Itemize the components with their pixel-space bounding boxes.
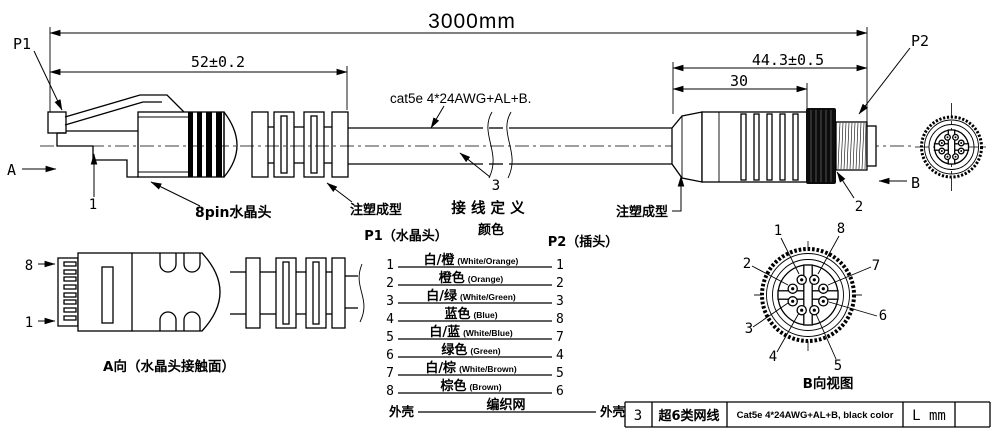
p2-callout: P2 <box>859 32 929 114</box>
row7-p1: 8 <box>386 384 394 399</box>
wiring-row: 1 白/橙(White/Orange) 1 <box>386 252 564 273</box>
overmold-left-text: 注塑成型 <box>350 202 402 218</box>
cable-spec-text: cat5e 4*24AWG+AL+B. <box>390 91 531 106</box>
a-view-pin1: 1 <box>25 315 33 331</box>
row4-color: 白/蓝(White/Blue) <box>429 324 512 340</box>
row7-p2: 6 <box>556 384 564 399</box>
row4-p1: 5 <box>386 330 394 345</box>
row6-color: 白/棕(White/Brown) <box>425 360 517 376</box>
b-pin-7: 7 <box>872 258 880 274</box>
wiring-row: 3 白/绿(White/Green) 3 <box>386 288 564 309</box>
wiring-row-shield: 外壳 编织网 外壳 <box>388 397 626 419</box>
overmold-right-callout: 注塑成型 <box>616 176 681 220</box>
rj45-connector-side-view <box>48 95 348 177</box>
wiring-row: 6 绿色(Green) 4 <box>386 342 564 363</box>
row2-p2: 3 <box>556 294 564 309</box>
dim-p2-length: 44.3±0.5 <box>752 51 824 69</box>
drawing-canvas: 3000mm 52±0.2 44.3±0.5 30 P1 P2 <box>0 0 1000 432</box>
b-pin-6: 6 <box>879 308 887 324</box>
b-pin-8: 8 <box>837 221 845 237</box>
view-a-arrow: A <box>7 161 56 179</box>
row3-p2: 8 <box>556 312 564 327</box>
callout-1: 1 <box>89 154 97 213</box>
callout-2-text: 2 <box>855 199 863 215</box>
overmold-left-callout: 注塑成型 <box>327 183 402 218</box>
row0-p1: 1 <box>386 258 394 273</box>
b-pin-1: 1 <box>774 223 782 239</box>
dim-p2-body: 30 <box>730 72 748 90</box>
row8-p2: 外壳 <box>599 404 626 419</box>
row4-p2: 7 <box>556 330 564 345</box>
row6-p2: 5 <box>556 366 564 381</box>
wiring-row: 2 橙色(Orange) 2 <box>386 270 564 291</box>
row3-color: 蓝色(Blue) <box>444 306 497 322</box>
row8-color: 编织网 <box>486 397 525 413</box>
row1-p2: 2 <box>556 276 564 291</box>
overmold-right-text: 注塑成型 <box>616 204 668 220</box>
row5-p1: 6 <box>386 348 394 363</box>
m12-face-small-view <box>915 103 989 191</box>
rj45-label-text: 8pin水晶头 <box>195 204 272 221</box>
m12-connector-side-view <box>672 108 876 184</box>
p1-label: P1 <box>13 35 31 53</box>
row1-color: 橙色(Orange) <box>439 270 504 286</box>
wiring-row: 4 蓝色(Blue) 8 <box>386 306 564 327</box>
b-label: B <box>911 174 920 192</box>
a-label: A <box>7 161 16 179</box>
wiring-col-p2: P2（插头） <box>548 234 619 250</box>
row5-color: 绿色(Green) <box>441 342 500 358</box>
callout-3: 3 <box>460 153 500 194</box>
callout-2: 2 <box>837 172 863 215</box>
dim-overall-length: 3000mm <box>428 10 516 33</box>
rj45-label-callout: 8pin水晶头 <box>151 182 272 221</box>
rj45-contact-face-view: 8 1 <box>25 253 364 375</box>
row2-p1: 3 <box>386 294 394 309</box>
row5-p2: 4 <box>556 348 564 363</box>
row1-p1: 2 <box>386 276 394 291</box>
wiring-definition: 接 线 定 义 P1（水晶头） 颜色 P2（插头） 1 白/橙(White/Or… <box>364 199 625 419</box>
row6-p1: 7 <box>386 366 394 381</box>
m12-face-b-view: 1 8 2 7 3 6 4 5 B向视图 <box>743 221 887 392</box>
callout-3-text: 3 <box>492 178 500 194</box>
cable-spec-callout: cat5e 4*24AWG+AL+B. <box>390 91 531 128</box>
row3-p1: 4 <box>386 312 394 327</box>
callout-1-text: 1 <box>89 197 97 213</box>
bom-item-spec: Cat5e 4*24AWG+AL+B, black color <box>737 410 894 421</box>
cable-assembly-drawing: 3000mm 52±0.2 44.3±0.5 30 P1 P2 <box>0 0 1000 432</box>
wiring-title: 接 线 定 义 <box>451 199 525 217</box>
wiring-col-color: 颜色 <box>478 222 504 238</box>
b-pin-5: 5 <box>834 358 842 374</box>
wiring-row: 5 白/蓝(White/Blue) 7 <box>386 324 564 345</box>
row2-color: 白/绿(White/Green) <box>426 288 516 304</box>
b-pin-3: 3 <box>745 321 753 337</box>
view-b-arrow: B <box>879 174 920 192</box>
bom-item-name: 超6类网线 <box>658 408 719 424</box>
wiring-row: 8 棕色(Brown) 6 <box>386 378 564 399</box>
b-pin-2: 2 <box>743 256 751 272</box>
wiring-col-p1: P1（水晶头） <box>364 228 448 244</box>
bom-table: 3 超6类网线 Cat5e 4*24AWG+AL+B, black color … <box>625 402 990 427</box>
wiring-row: 7 白/棕(White/Brown) 5 <box>386 360 564 381</box>
b-view-caption: B向视图 <box>803 375 854 392</box>
b-pin-4: 4 <box>769 349 777 365</box>
row0-p2: 1 <box>556 258 564 273</box>
p2-label: P2 <box>911 32 929 50</box>
a-view-pin8: 8 <box>25 258 33 274</box>
bom-item-no: 3 <box>634 408 642 424</box>
a-view-caption: A向（水晶头接触面） <box>103 358 235 375</box>
row0-color: 白/橙(White/Orange) <box>424 252 519 268</box>
dim-p1-length: 52±0.2 <box>191 53 245 71</box>
row7-color: 棕色(Brown) <box>439 378 501 394</box>
bom-item-length: L mm <box>912 408 946 424</box>
row8-p1: 外壳 <box>388 404 415 419</box>
